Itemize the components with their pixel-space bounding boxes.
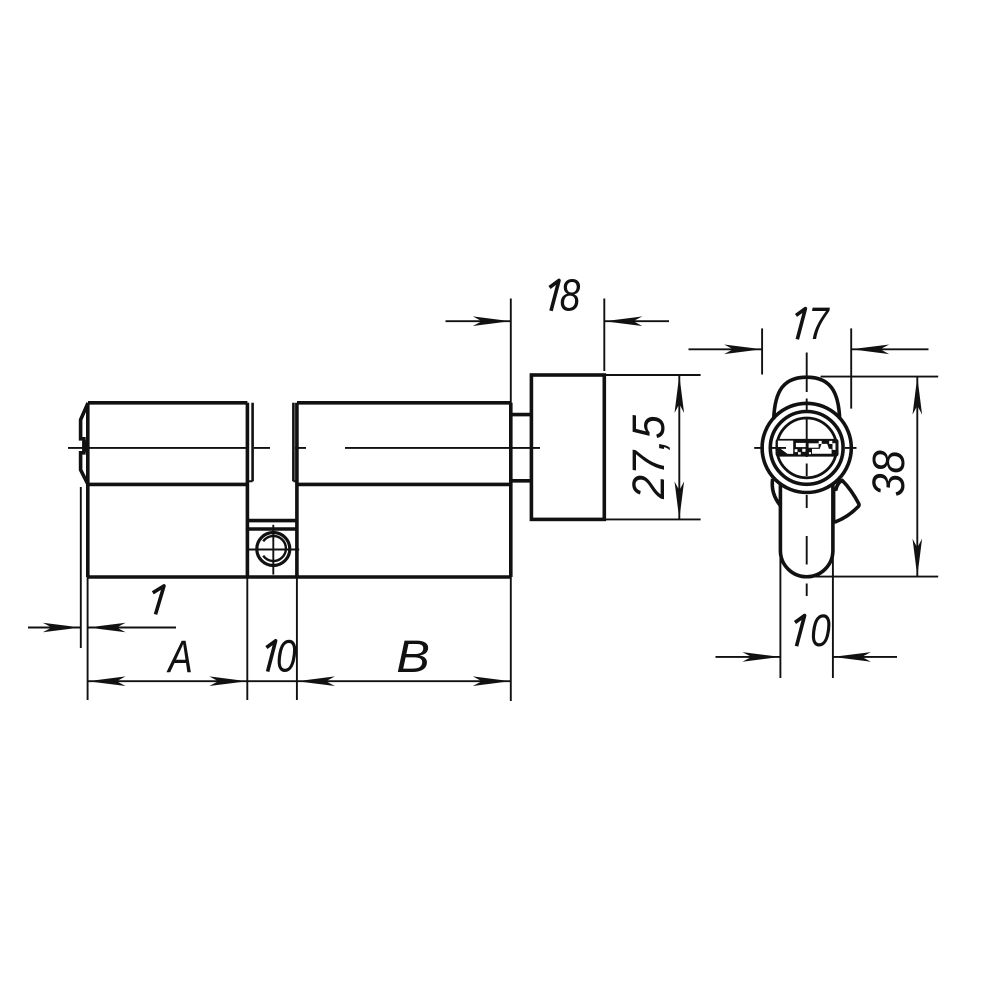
svg-text:0: 0 xyxy=(810,606,831,656)
svg-text:38: 38 xyxy=(864,450,915,497)
svg-text:27,5: 27,5 xyxy=(624,415,674,500)
svg-text:8: 8 xyxy=(560,270,581,320)
svg-text:B: B xyxy=(396,632,430,682)
svg-text:7: 7 xyxy=(808,299,830,349)
svg-text:A: A xyxy=(166,632,193,682)
svg-text:0: 0 xyxy=(276,631,297,681)
